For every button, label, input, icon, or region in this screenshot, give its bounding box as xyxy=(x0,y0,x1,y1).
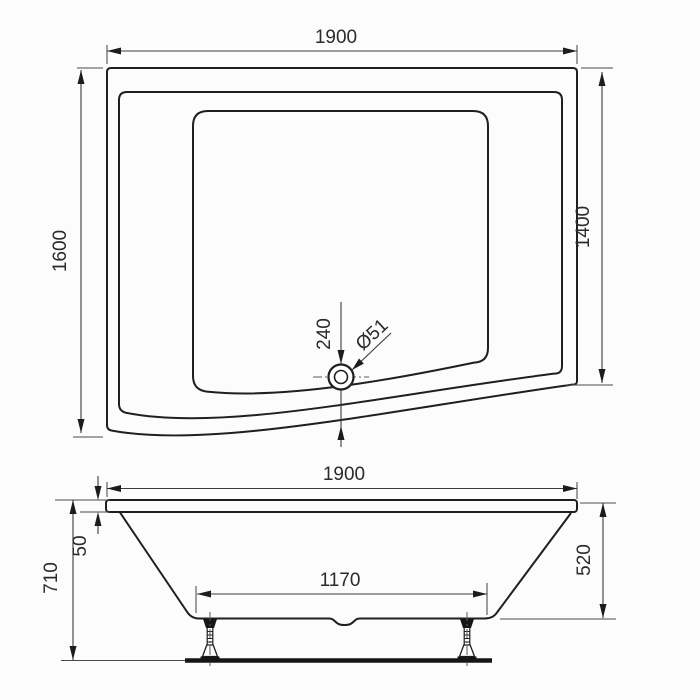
dim-label-bottom-length: 1170 xyxy=(320,570,361,591)
dim-label-right-side: 1400 xyxy=(573,206,594,248)
foot-left xyxy=(201,612,220,666)
dim-right-side: 1400 xyxy=(566,68,613,385)
dim-label-left-side: 1600 xyxy=(50,230,71,272)
arrowhead xyxy=(563,48,577,55)
dim-label-drain-diameter: Ø51 xyxy=(352,315,393,355)
body-profile xyxy=(120,513,571,626)
dim-label-drain-offset: 240 xyxy=(314,318,335,350)
dim-label-top-width: 1900 xyxy=(315,27,357,48)
rim-profile xyxy=(106,500,577,512)
dim-left-side: 1600 xyxy=(50,68,103,437)
dim-label-skirt-height: 520 xyxy=(574,544,595,576)
top-view: 1900 1600 1400 240 xyxy=(50,27,613,447)
dim-rim-thickness: 50 xyxy=(70,476,110,557)
dim-label-rim-thickness: 50 xyxy=(70,535,91,556)
arrowhead xyxy=(107,48,121,55)
dim-label-bottom-width: 1900 xyxy=(323,464,365,485)
drain-outer-circle xyxy=(329,365,354,390)
dim-bottom-width: 1900 xyxy=(107,464,577,499)
dim-top-width: 1900 xyxy=(107,27,577,64)
foot-right xyxy=(458,612,477,666)
dim-skirt-height: 520 xyxy=(500,503,616,619)
dim-bottom-length: 1170 xyxy=(196,570,487,615)
side-view: 1900 710 50 520 xyxy=(41,464,616,666)
dim-label-overall-height: 710 xyxy=(41,562,62,594)
leader-drain-diameter: Ø51 xyxy=(352,315,393,370)
technical-drawing-canvas: 1900 1600 1400 240 xyxy=(0,0,700,700)
